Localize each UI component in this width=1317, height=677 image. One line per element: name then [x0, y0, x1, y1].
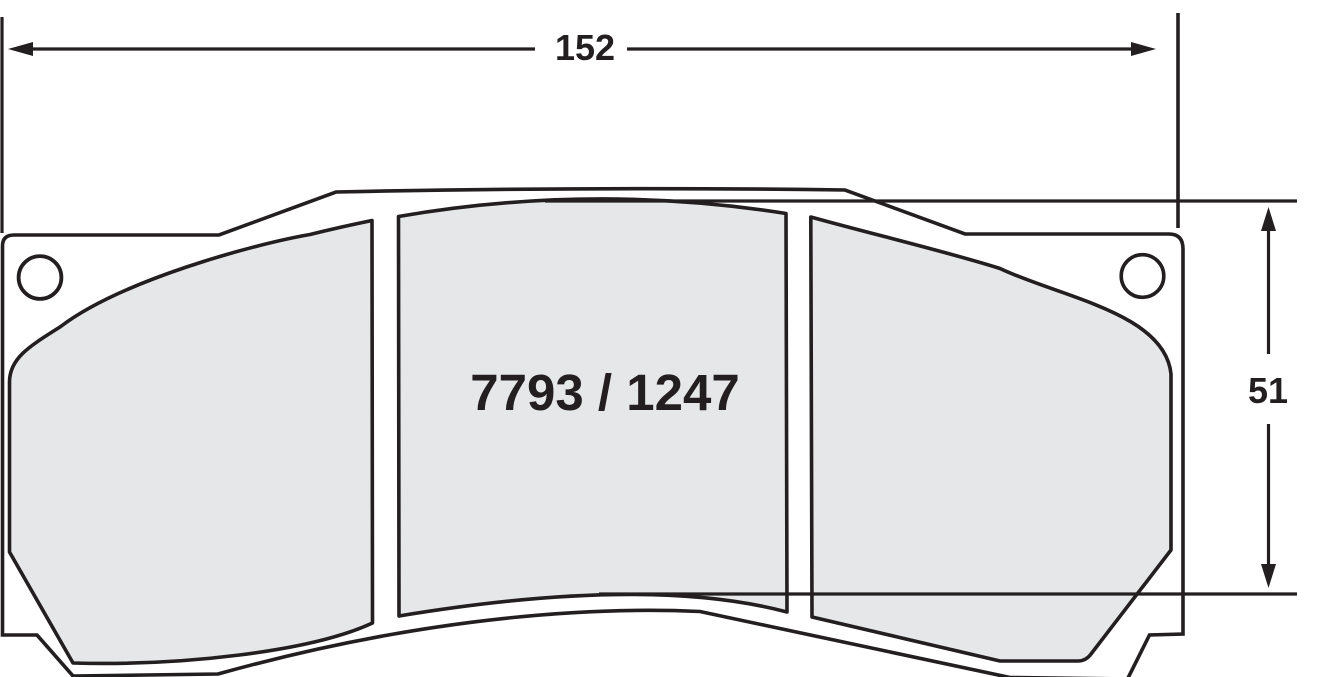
- svg-text:152: 152: [555, 27, 615, 68]
- svg-text:7793 / 1247: 7793 / 1247: [470, 364, 739, 421]
- svg-text:51: 51: [1248, 370, 1288, 411]
